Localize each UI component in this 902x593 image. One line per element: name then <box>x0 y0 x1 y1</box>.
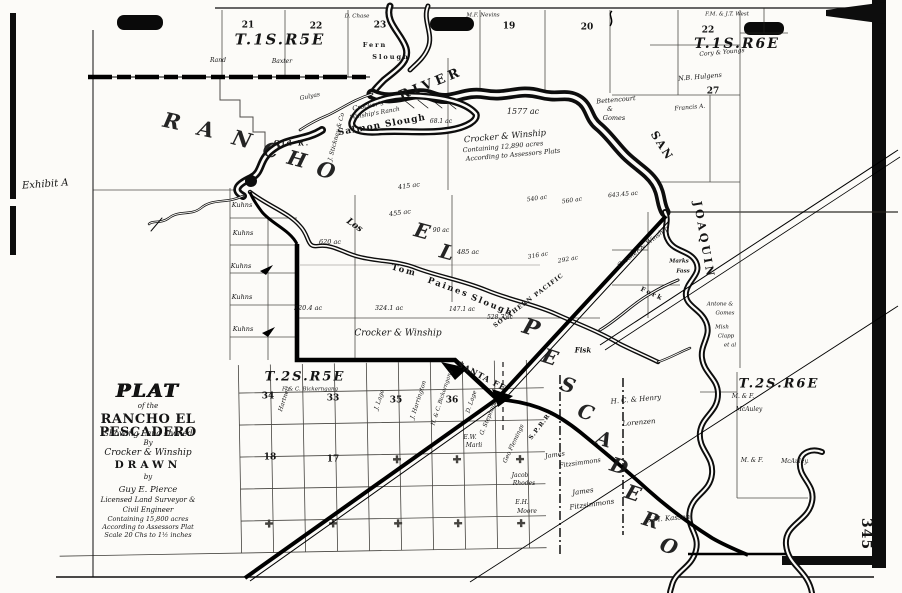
salmon-slough <box>352 96 476 132</box>
title-scale: Scale 20 Chs to 1½ inches <box>56 532 240 539</box>
title-acreage: Containing 15,800 acres <box>56 516 240 523</box>
title-according: According to Assessors Plat <box>56 524 240 531</box>
title-by2: by <box>56 474 240 481</box>
title-owner: Crocker & Winship <box>56 449 240 458</box>
title-engineer: Civil Engineer <box>56 507 240 514</box>
title-of-the: of the <box>56 403 240 410</box>
survey-arrow <box>262 327 275 337</box>
title-surveyor-role: Licensed Land Surveyor & <box>56 497 240 504</box>
title-block: PLAT of the RANCHO EL PESCADERO Showing … <box>56 380 240 545</box>
tom-paines-slough <box>250 192 658 362</box>
title-surveyor-name: Guy E. Pierce <box>56 486 240 495</box>
plat-map-page: T.1S.R5ET.1S.R6ET.2S.R5ET.2S.R6E21222319… <box>0 0 902 593</box>
page-number: 345 <box>858 518 874 550</box>
title-drawn: DRAWN <box>56 460 240 471</box>
title-showing: Showing Land Owned <box>56 430 240 438</box>
title-plat: PLAT <box>56 382 240 401</box>
title-by: By <box>56 440 240 447</box>
survey-arrow <box>260 265 273 275</box>
tape-marks <box>117 15 784 35</box>
rivers <box>149 6 822 593</box>
